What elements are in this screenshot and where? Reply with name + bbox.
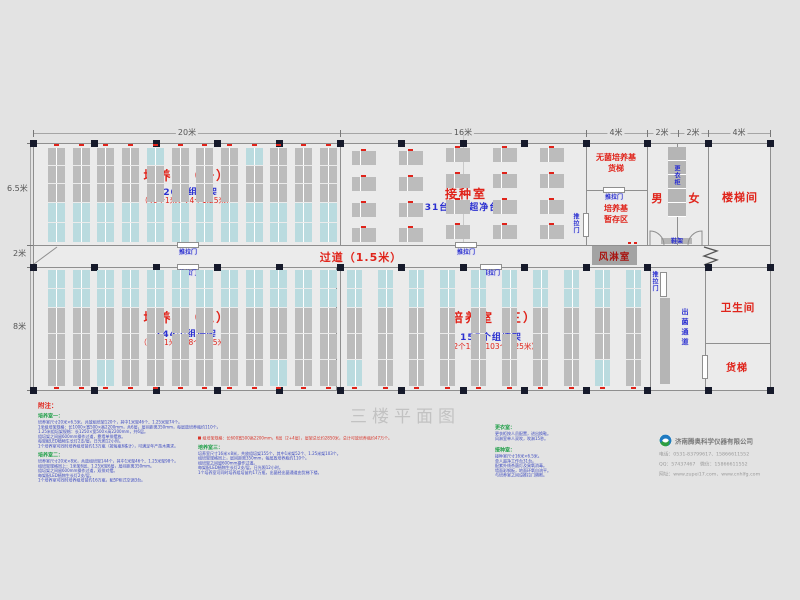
rack-red-tick xyxy=(227,144,232,146)
culture-rack xyxy=(73,148,90,165)
notes-locker-header: 更衣室： xyxy=(495,423,575,431)
culture-rack xyxy=(147,166,164,183)
culture-rack xyxy=(97,360,114,386)
culture-rack xyxy=(270,148,287,165)
culture-rack xyxy=(347,360,362,386)
culture-rack xyxy=(147,184,164,202)
clean-bench xyxy=(399,228,423,242)
structural-column xyxy=(644,264,651,271)
culture-rack xyxy=(221,203,238,222)
bench-red-tick xyxy=(408,226,413,228)
rack-red-tick xyxy=(252,387,257,389)
culture-rack xyxy=(564,308,579,333)
wall-corridor-top xyxy=(33,245,771,246)
culture-rack xyxy=(246,223,263,242)
culture-rack xyxy=(320,270,337,288)
culture-rack xyxy=(295,223,312,242)
clean-bench xyxy=(540,200,564,214)
culture-rack xyxy=(409,270,424,288)
floor-plan-page: 20米 16米 4米 2米 2米 4米 6.5米 2米 8米 风淋室 推拉门 推… xyxy=(0,0,800,600)
culture-rack xyxy=(533,308,548,333)
culture-rack xyxy=(270,203,287,222)
culture-rack xyxy=(221,308,238,333)
culture-rack xyxy=(122,203,139,222)
culture-rack xyxy=(409,289,424,307)
structural-column xyxy=(767,264,774,271)
structural-column xyxy=(337,264,344,271)
culture-rack xyxy=(295,270,312,288)
culture-rack xyxy=(172,223,189,242)
culture-rack xyxy=(73,360,90,386)
notes-room3-header: 培养室三： xyxy=(198,443,358,451)
culture-rack xyxy=(246,308,263,333)
culture-rack xyxy=(147,289,164,307)
structural-column xyxy=(460,140,467,147)
dim-8m: 8米 xyxy=(13,322,26,331)
door-label-inoculation: 推拉门 xyxy=(456,249,476,256)
rack-red-tick xyxy=(352,387,357,389)
culture-rack xyxy=(196,166,213,183)
structural-column xyxy=(398,387,405,394)
room3-name: 培养室（三） xyxy=(448,307,539,326)
rack-red-tick xyxy=(79,387,84,389)
culture-rack xyxy=(122,289,139,307)
rack-red-tick xyxy=(538,387,543,389)
bench-red-tick xyxy=(502,146,507,148)
bench-red-tick xyxy=(455,223,460,225)
culture-rack xyxy=(221,184,238,202)
culture-rack xyxy=(533,270,548,288)
culture-rack xyxy=(97,166,114,183)
clean-bench xyxy=(399,203,423,217)
bench-red-tick xyxy=(502,172,507,174)
bench-red-tick xyxy=(549,198,554,200)
culture-rack xyxy=(440,270,455,288)
culture-rack xyxy=(533,334,548,359)
culture-rack xyxy=(97,289,114,307)
culture-rack xyxy=(97,148,114,165)
dim-20m: 20米 xyxy=(176,128,198,137)
culture-rack xyxy=(196,289,213,307)
culture-rack xyxy=(147,334,164,359)
culture-rack xyxy=(320,360,337,386)
culture-rack xyxy=(172,308,189,333)
air-shower-room: 风淋室 xyxy=(592,246,637,265)
structural-column xyxy=(460,387,467,394)
rack-red-tick xyxy=(276,387,281,389)
culture-rack xyxy=(502,289,517,307)
culture-rack xyxy=(122,166,139,183)
structural-column xyxy=(583,387,590,394)
culture-rack xyxy=(221,166,238,183)
rack-red-tick xyxy=(153,387,158,389)
culture-rack xyxy=(502,334,517,359)
sliding-door-exit-corridor xyxy=(660,272,667,297)
culture-rack xyxy=(172,203,189,222)
company-logo-icon xyxy=(659,434,672,447)
structural-column xyxy=(705,387,712,394)
culture-rack xyxy=(440,334,455,359)
culture-rack xyxy=(347,308,362,333)
structural-column xyxy=(521,264,528,271)
freight-elevator-label: 货梯 xyxy=(726,359,748,374)
culture-rack xyxy=(122,184,139,202)
culture-rack xyxy=(471,289,486,307)
notes-column-3: 更衣室： 更衣柜按人员配置，进出换鞋。 风淋室单人双吹，吹淋15秒。 接种室： … xyxy=(495,423,575,533)
culture-rack xyxy=(595,360,610,386)
clean-bench xyxy=(493,174,517,188)
rack-red-tick xyxy=(252,144,257,146)
culture-rack xyxy=(564,360,579,386)
culture-rack xyxy=(246,184,263,202)
culture-rack xyxy=(409,360,424,386)
clean-bench xyxy=(493,225,517,239)
culture-rack xyxy=(595,308,610,333)
culture-rack xyxy=(440,289,455,307)
culture-rack xyxy=(471,308,486,333)
culture-rack xyxy=(172,148,189,165)
culture-rack xyxy=(270,360,287,386)
culture-rack xyxy=(147,148,164,165)
culture-rack xyxy=(246,203,263,222)
clean-bench xyxy=(352,177,376,191)
structural-column xyxy=(521,140,528,147)
exit-corridor-rack xyxy=(660,298,670,384)
culture-rack xyxy=(295,203,312,222)
locker-label: 更衣柜 xyxy=(672,165,681,186)
rack-red-tick xyxy=(178,144,183,146)
structural-column xyxy=(30,387,37,394)
rack-red-tick xyxy=(153,144,158,146)
culture-rack xyxy=(320,223,337,242)
culture-rack xyxy=(196,270,213,288)
clean-bench xyxy=(399,151,423,165)
clean-bench xyxy=(399,177,423,191)
clean-bench xyxy=(493,148,517,162)
notes-room2-header: 培养室二： xyxy=(38,451,198,459)
culture-rack xyxy=(147,223,164,242)
clean-bench xyxy=(446,225,470,239)
culture-rack xyxy=(196,148,213,165)
culture-rack xyxy=(246,360,263,386)
culture-rack xyxy=(347,270,362,288)
culture-rack xyxy=(295,166,312,183)
culture-rack xyxy=(320,166,337,183)
culture-rack xyxy=(270,289,287,307)
culture-rack xyxy=(320,334,337,359)
culture-rack xyxy=(378,289,393,307)
culture-rack xyxy=(172,334,189,359)
culture-rack xyxy=(246,289,263,307)
company-name: 济南腾奥科学仪器有限公司 xyxy=(675,436,753,446)
culture-rack xyxy=(378,308,393,333)
clean-bench xyxy=(446,200,470,214)
culture-rack xyxy=(73,223,90,242)
company-qq: QQ：57437467 微信：15866611552 xyxy=(659,460,800,467)
culture-rack xyxy=(471,270,486,288)
sliding-door-inoculation-side xyxy=(583,213,589,237)
structural-column xyxy=(337,387,344,394)
culture-rack xyxy=(48,289,65,307)
culture-rack xyxy=(626,360,641,386)
structural-column xyxy=(30,264,37,271)
culture-rack xyxy=(172,270,189,288)
sterile-media-line2: 货梯 xyxy=(608,163,624,174)
door-label-inoculation-side: 推拉门 xyxy=(572,213,579,234)
culture-rack xyxy=(320,308,337,333)
structural-column xyxy=(767,140,774,147)
wall-toilet-elevator-divider xyxy=(705,343,771,344)
dim-2m-left: 2米 xyxy=(13,249,26,258)
wall-room1-inoculation xyxy=(340,143,341,245)
culture-rack xyxy=(196,203,213,222)
rack-red-tick xyxy=(202,387,207,389)
culture-rack xyxy=(378,334,393,359)
wall-male-left xyxy=(647,143,648,245)
culture-rack xyxy=(595,334,610,359)
culture-rack xyxy=(97,184,114,202)
rack-red-tick xyxy=(569,387,574,389)
culture-rack xyxy=(196,360,213,386)
note-line: 1个培养室可同时培养组培苗约13万瓶（按每瓶6株计），可满足年产苗木需求。 xyxy=(38,444,198,449)
exit-corridor-label: 出菌通道 xyxy=(680,308,690,348)
culture-rack xyxy=(440,308,455,333)
culture-rack xyxy=(48,308,65,333)
culture-rack xyxy=(320,289,337,307)
door-label-room1: 推拉门 xyxy=(178,249,198,256)
structural-column xyxy=(214,387,221,394)
clean-bench xyxy=(446,148,470,162)
bench-red-tick xyxy=(455,198,460,200)
culture-rack xyxy=(533,289,548,307)
culture-rack xyxy=(270,334,287,359)
culture-rack xyxy=(48,360,65,386)
sliding-door-media xyxy=(603,187,625,193)
dim-6-5m: 6.5米 xyxy=(7,184,28,193)
culture-rack xyxy=(73,308,90,333)
clean-bench xyxy=(540,148,564,162)
door-label-media: 推拉门 xyxy=(604,194,624,201)
rack-red-tick xyxy=(202,144,207,146)
stairwell-label: 楼梯间 xyxy=(722,189,758,205)
culture-rack xyxy=(97,223,114,242)
culture-rack xyxy=(320,184,337,202)
culture-rack xyxy=(172,184,189,202)
culture-rack xyxy=(221,270,238,288)
culture-rack xyxy=(48,148,65,165)
culture-rack xyxy=(564,334,579,359)
culture-rack xyxy=(270,223,287,242)
bench-red-tick xyxy=(502,223,507,225)
culture-rack xyxy=(246,148,263,165)
media-storage-line2: 暂存区 xyxy=(604,214,628,225)
culture-rack xyxy=(347,289,362,307)
culture-rack xyxy=(270,308,287,333)
structural-column xyxy=(583,264,590,271)
culture-rack xyxy=(295,308,312,333)
rack-red-tick xyxy=(383,387,388,389)
structural-column xyxy=(583,140,590,147)
bench-red-tick xyxy=(502,198,507,200)
culture-rack xyxy=(270,270,287,288)
culture-rack xyxy=(378,270,393,288)
culture-rack xyxy=(595,270,610,288)
door-freight-elevator xyxy=(702,355,708,379)
sliding-door-room1 xyxy=(177,242,199,248)
structural-column xyxy=(767,387,774,394)
culture-rack xyxy=(270,184,287,202)
note-line: 1个培养室可同时培养组培苗约17万瓶，出菌经出菌通道由货梯下楼。 xyxy=(198,470,358,475)
culture-rack xyxy=(626,270,641,288)
rack-red-tick xyxy=(301,144,306,146)
rack-red-tick xyxy=(178,387,183,389)
culture-rack xyxy=(440,360,455,386)
culture-rack xyxy=(295,289,312,307)
culture-rack xyxy=(196,184,213,202)
female-room-label: 女 xyxy=(689,190,700,206)
culture-rack xyxy=(97,334,114,359)
culture-rack xyxy=(73,334,90,359)
rack-spec-note: 组培架规格：长600宽500高2200mm，6层（2+4层），层架总长约2850… xyxy=(198,436,358,441)
rack-red-tick xyxy=(103,144,108,146)
company-info: 济南腾奥科学仪器有限公司 电话：0531-83799617、1586661155… xyxy=(659,434,800,520)
culture-rack xyxy=(48,184,65,202)
notes-inoculation-header: 接种室： xyxy=(495,446,575,454)
culture-rack xyxy=(595,289,610,307)
rack-red-tick xyxy=(128,387,133,389)
clean-bench xyxy=(446,174,470,188)
culture-rack xyxy=(122,308,139,333)
dim-2m-b: 2米 xyxy=(684,128,701,137)
culture-rack xyxy=(502,360,517,386)
male-room-label: 男 xyxy=(652,190,663,206)
culture-rack xyxy=(246,166,263,183)
culture-rack xyxy=(73,166,90,183)
dim-4m-a: 4米 xyxy=(607,128,624,137)
rack-red-tick xyxy=(301,387,306,389)
air-shower-label: 风淋室 xyxy=(599,249,631,263)
bench-red-tick xyxy=(408,201,413,203)
notes-title: 附注： xyxy=(38,400,198,410)
culture-rack xyxy=(73,203,90,222)
culture-rack xyxy=(320,203,337,222)
rack-red-tick xyxy=(326,387,331,389)
structural-column xyxy=(337,140,344,147)
culture-rack xyxy=(147,308,164,333)
culture-rack xyxy=(196,308,213,333)
culture-rack xyxy=(378,360,393,386)
culture-rack xyxy=(172,360,189,386)
culture-rack xyxy=(48,223,65,242)
dim-2m-a: 2米 xyxy=(653,128,670,137)
rack-red-tick xyxy=(445,387,450,389)
clean-bench xyxy=(352,203,376,217)
culture-rack xyxy=(564,289,579,307)
clean-bench xyxy=(493,200,517,214)
culture-rack xyxy=(471,360,486,386)
bench-red-tick xyxy=(361,201,366,203)
culture-rack xyxy=(502,308,517,333)
wall-room2-room3-b xyxy=(340,267,341,390)
culture-rack xyxy=(147,203,164,222)
culture-rack xyxy=(221,289,238,307)
culture-rack xyxy=(172,289,189,307)
culture-rack xyxy=(48,270,65,288)
culture-rack xyxy=(97,270,114,288)
rack-red-tick xyxy=(103,387,108,389)
structural-column xyxy=(91,140,98,147)
note-line: 1个培养室可同时培养组培苗约16万瓶，配5P柜式空调3台。 xyxy=(38,478,198,483)
structural-column xyxy=(705,140,712,147)
bench-red-tick xyxy=(549,146,554,148)
rack-red-tick xyxy=(79,144,84,146)
culture-rack xyxy=(48,203,65,222)
rack-red-tick xyxy=(54,144,59,146)
culture-rack xyxy=(295,360,312,386)
culture-rack xyxy=(626,289,641,307)
culture-rack xyxy=(122,334,139,359)
rack-red-tick xyxy=(414,387,419,389)
note-bullet-icon xyxy=(198,437,201,440)
rack-red-tick xyxy=(476,387,481,389)
bench-red-tick xyxy=(361,226,366,228)
culture-rack xyxy=(347,334,362,359)
rack-red-tick xyxy=(631,387,636,389)
bench-red-tick xyxy=(408,175,413,177)
structural-column xyxy=(521,387,528,394)
rack-red-tick xyxy=(276,144,281,146)
rack-red-tick xyxy=(507,387,512,389)
note-line: 与培养室之间设推拉门隔断。 xyxy=(495,473,575,478)
bench-red-tick xyxy=(408,149,413,151)
structural-column xyxy=(644,387,651,394)
culture-rack xyxy=(295,148,312,165)
shoe-rack-label: 鞋架 xyxy=(671,236,683,245)
culture-rack xyxy=(172,166,189,183)
bench-red-tick xyxy=(549,172,554,174)
structural-column xyxy=(91,387,98,394)
structural-column xyxy=(214,264,221,271)
culture-rack xyxy=(626,308,641,333)
culture-rack xyxy=(48,166,65,183)
culture-rack xyxy=(409,334,424,359)
culture-rack xyxy=(626,334,641,359)
sterile-media-line1: 无菌培养基 xyxy=(596,152,636,163)
bench-red-tick xyxy=(361,175,366,177)
culture-rack xyxy=(295,334,312,359)
culture-rack xyxy=(246,334,263,359)
culture-rack xyxy=(196,223,213,242)
clean-bench xyxy=(540,225,564,239)
media-storage-line1: 培养基 xyxy=(604,203,628,214)
culture-rack xyxy=(48,334,65,359)
culture-rack xyxy=(221,334,238,359)
structural-column xyxy=(644,140,651,147)
culture-rack xyxy=(295,184,312,202)
door-label-exit-corridor: 推拉门 xyxy=(651,271,658,292)
corridor-label: 过道（1.5米） xyxy=(320,249,403,265)
culture-rack xyxy=(122,360,139,386)
note-line: 风淋室单人双吹，吹淋15秒。 xyxy=(495,436,575,441)
clean-bench xyxy=(540,174,564,188)
culture-rack xyxy=(73,289,90,307)
bench-red-tick xyxy=(455,146,460,148)
culture-rack xyxy=(564,270,579,288)
culture-rack xyxy=(270,166,287,183)
wall-stairwell-left xyxy=(708,143,709,245)
dim-4m-b: 4米 xyxy=(730,128,747,137)
company-web: 网址：www.zupei17.com、www.cnhlfg.com xyxy=(659,470,800,477)
